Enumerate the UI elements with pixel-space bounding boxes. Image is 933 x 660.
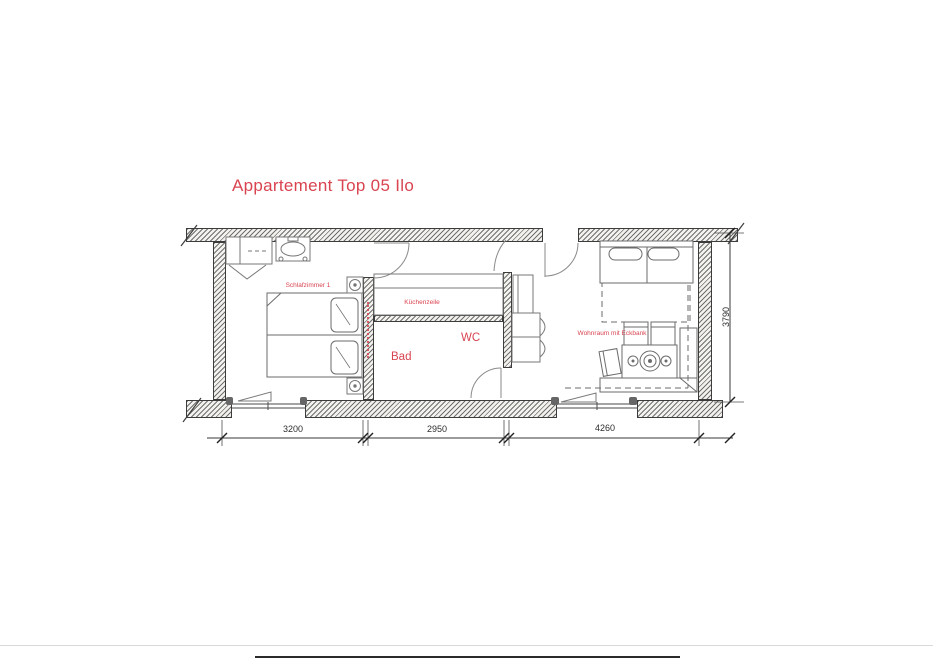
double-bed: [267, 293, 362, 377]
door-bath: [471, 368, 501, 398]
floorplan-sheet: Appartement Top 05 Ilo: [0, 0, 933, 660]
nightstand-bottom: [347, 378, 363, 394]
corner-bench: [565, 285, 697, 392]
room-label-living: Wohnraum mit Eckbank: [578, 330, 647, 337]
room-label-bedroom: Schlafzimmer 1: [286, 282, 331, 289]
scan-artifact: [255, 656, 680, 658]
room-label-kitchen: Küchenzeile: [404, 299, 439, 306]
dimension-bedroom-width: 3200: [283, 424, 303, 434]
dimension-living-width: 4260: [595, 423, 615, 433]
wall-bath-top: [374, 315, 503, 322]
wall-wc: [503, 272, 512, 368]
page-edge-line: [0, 645, 933, 646]
wall-right: [698, 242, 712, 400]
drawing-title: Appartement Top 05 Ilo: [232, 176, 414, 196]
dimension-middle-width: 2950: [427, 424, 447, 434]
wall-bottom-b: [305, 400, 557, 418]
wall-bottom-a: [186, 400, 232, 418]
wall-bottom-c: [637, 400, 723, 418]
room-label-wc: WC: [461, 332, 480, 344]
door-bedroom: [374, 243, 409, 278]
window-bedroom: [226, 392, 307, 410]
dining-table: [622, 345, 677, 378]
nightstand-top: [347, 277, 363, 293]
wall-left: [213, 242, 226, 400]
wall-top-left: [186, 228, 543, 242]
sofa-bed: [600, 241, 693, 322]
wall-annotation-red: [367, 302, 369, 358]
wardrobe: [226, 237, 272, 279]
window-living: [551, 393, 637, 410]
plan-linework: [0, 0, 933, 660]
dimension-depth: 3790: [721, 299, 733, 335]
wall-break-marks: [181, 223, 744, 422]
hall-cabinet-upper: [513, 275, 533, 313]
room-label-bath: Bad: [391, 351, 411, 363]
wall-top-right: [578, 228, 738, 242]
hall-cabinet-lower: [512, 313, 545, 362]
kitchen-counter: [374, 274, 503, 315]
